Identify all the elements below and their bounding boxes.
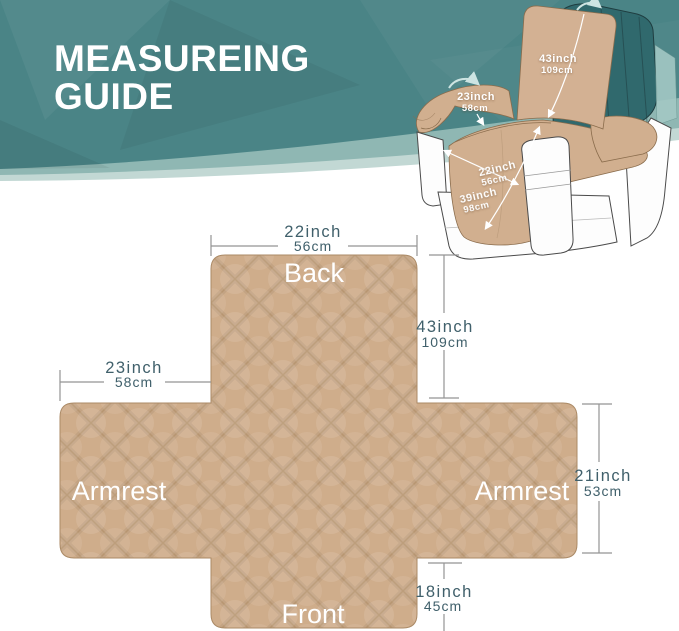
cover-cross-shape <box>60 255 577 628</box>
title-line-2: GUIDE <box>54 78 310 116</box>
chair-armrest-width-cm: 58cm <box>462 103 488 114</box>
dim-back-length-cm: 109cm <box>421 334 468 350</box>
dim-back-width-cm: 56cm <box>294 238 332 254</box>
arrow-armrest-width-icon <box>477 114 483 124</box>
dim-armrest-length-cm: 53cm <box>584 483 622 499</box>
dim-armrest-width-cm: 58cm <box>115 374 153 390</box>
panel-label-front: Front <box>281 599 345 629</box>
page-title: MEASUREING GUIDE <box>54 40 310 116</box>
dim-back-length: 43inch 109cm <box>416 255 474 398</box>
dim-armrest-width: 23inch 58cm <box>60 359 211 401</box>
panel-label-armrest-left: Armrest <box>72 476 167 506</box>
flat-cover-diagram: Back Armrest Armrest Front 22inch 56cm 4… <box>0 210 679 631</box>
title-line-1: MEASUREING <box>54 40 310 78</box>
dim-back-width: 22inch 56cm <box>211 223 417 256</box>
chair-armrest-width-inch: 23inch <box>457 91 495 103</box>
chair-back-length-inch: 43inch <box>539 53 577 65</box>
chair-back-length-cm: 109cm <box>541 65 573 76</box>
panel-label-back: Back <box>284 258 345 288</box>
measuring-guide-infographic: MEASUREING GUIDE <box>0 0 679 631</box>
dim-front-length: 18inch 45cm <box>415 563 473 631</box>
panel-label-armrest-right: Armrest <box>475 476 570 506</box>
dim-armrest-length: 21inch 53cm <box>574 404 632 553</box>
dim-front-length-cm: 45cm <box>424 598 462 614</box>
